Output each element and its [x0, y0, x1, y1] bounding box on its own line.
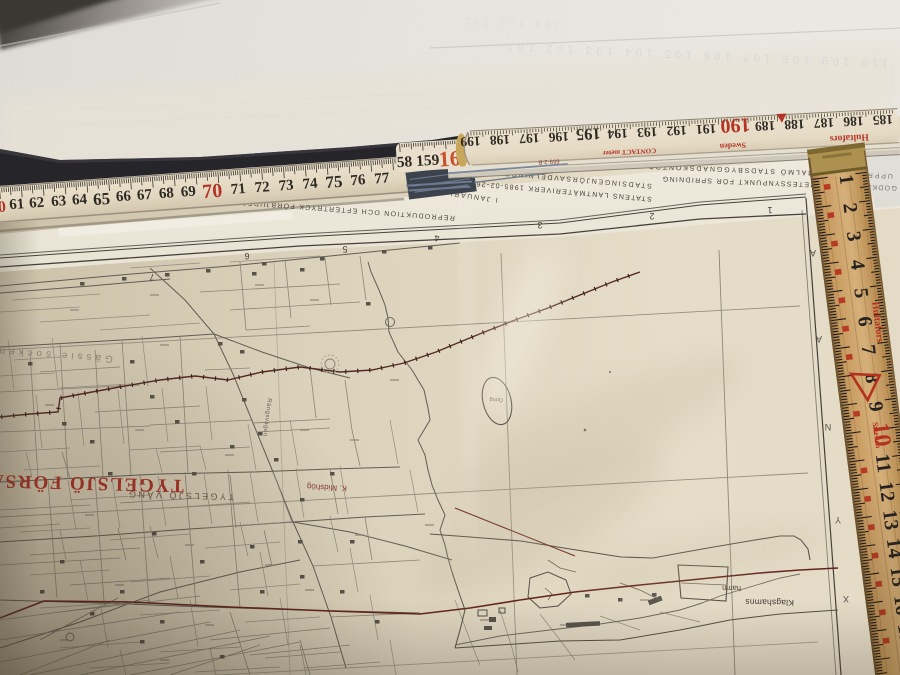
- svg-text:185: 185: [872, 112, 893, 128]
- svg-text:189: 189: [754, 118, 775, 134]
- svg-text:75: 75: [325, 172, 343, 192]
- svg-text:74: 74: [302, 176, 319, 193]
- svg-text:192: 192: [666, 123, 687, 139]
- svg-text:68: 68: [158, 185, 174, 202]
- svg-text:58 159: 58 159: [396, 152, 440, 172]
- svg-text:65: 65: [92, 189, 110, 209]
- svg-text:Hultafors: Hultafors: [829, 131, 869, 143]
- svg-text:63: 63: [51, 193, 67, 210]
- svg-text:77: 77: [374, 170, 391, 187]
- svg-text:190: 190: [720, 113, 751, 137]
- svg-text:11: 11: [871, 452, 895, 474]
- svg-text:62: 62: [29, 195, 45, 212]
- svg-text:186: 186: [843, 113, 864, 129]
- svg-text:69: 69: [180, 184, 196, 201]
- svg-text:76: 76: [350, 172, 367, 189]
- svg-text:191: 191: [695, 121, 716, 137]
- svg-text:64: 64: [72, 192, 89, 209]
- svg-text:61: 61: [9, 196, 25, 213]
- svg-text:198: 198: [489, 132, 510, 148]
- svg-text:195: 195: [575, 124, 601, 144]
- svg-text:67: 67: [136, 187, 153, 204]
- svg-text:199: 199: [460, 134, 481, 150]
- svg-text:196: 196: [548, 129, 569, 145]
- svg-text:197: 197: [519, 130, 540, 146]
- svg-text:73: 73: [278, 177, 294, 194]
- svg-text:187: 187: [813, 115, 834, 131]
- svg-text:72: 72: [254, 179, 270, 196]
- svg-text:Sweden: Sweden: [719, 141, 746, 151]
- svg-text:193: 193: [636, 124, 657, 140]
- svg-text:71: 71: [230, 181, 246, 198]
- svg-text:70: 70: [202, 180, 224, 203]
- svg-text:66: 66: [115, 188, 132, 205]
- svg-text:659·2-B: 659·2-B: [538, 157, 560, 164]
- svg-text:194: 194: [607, 126, 628, 142]
- svg-text:188: 188: [784, 117, 805, 133]
